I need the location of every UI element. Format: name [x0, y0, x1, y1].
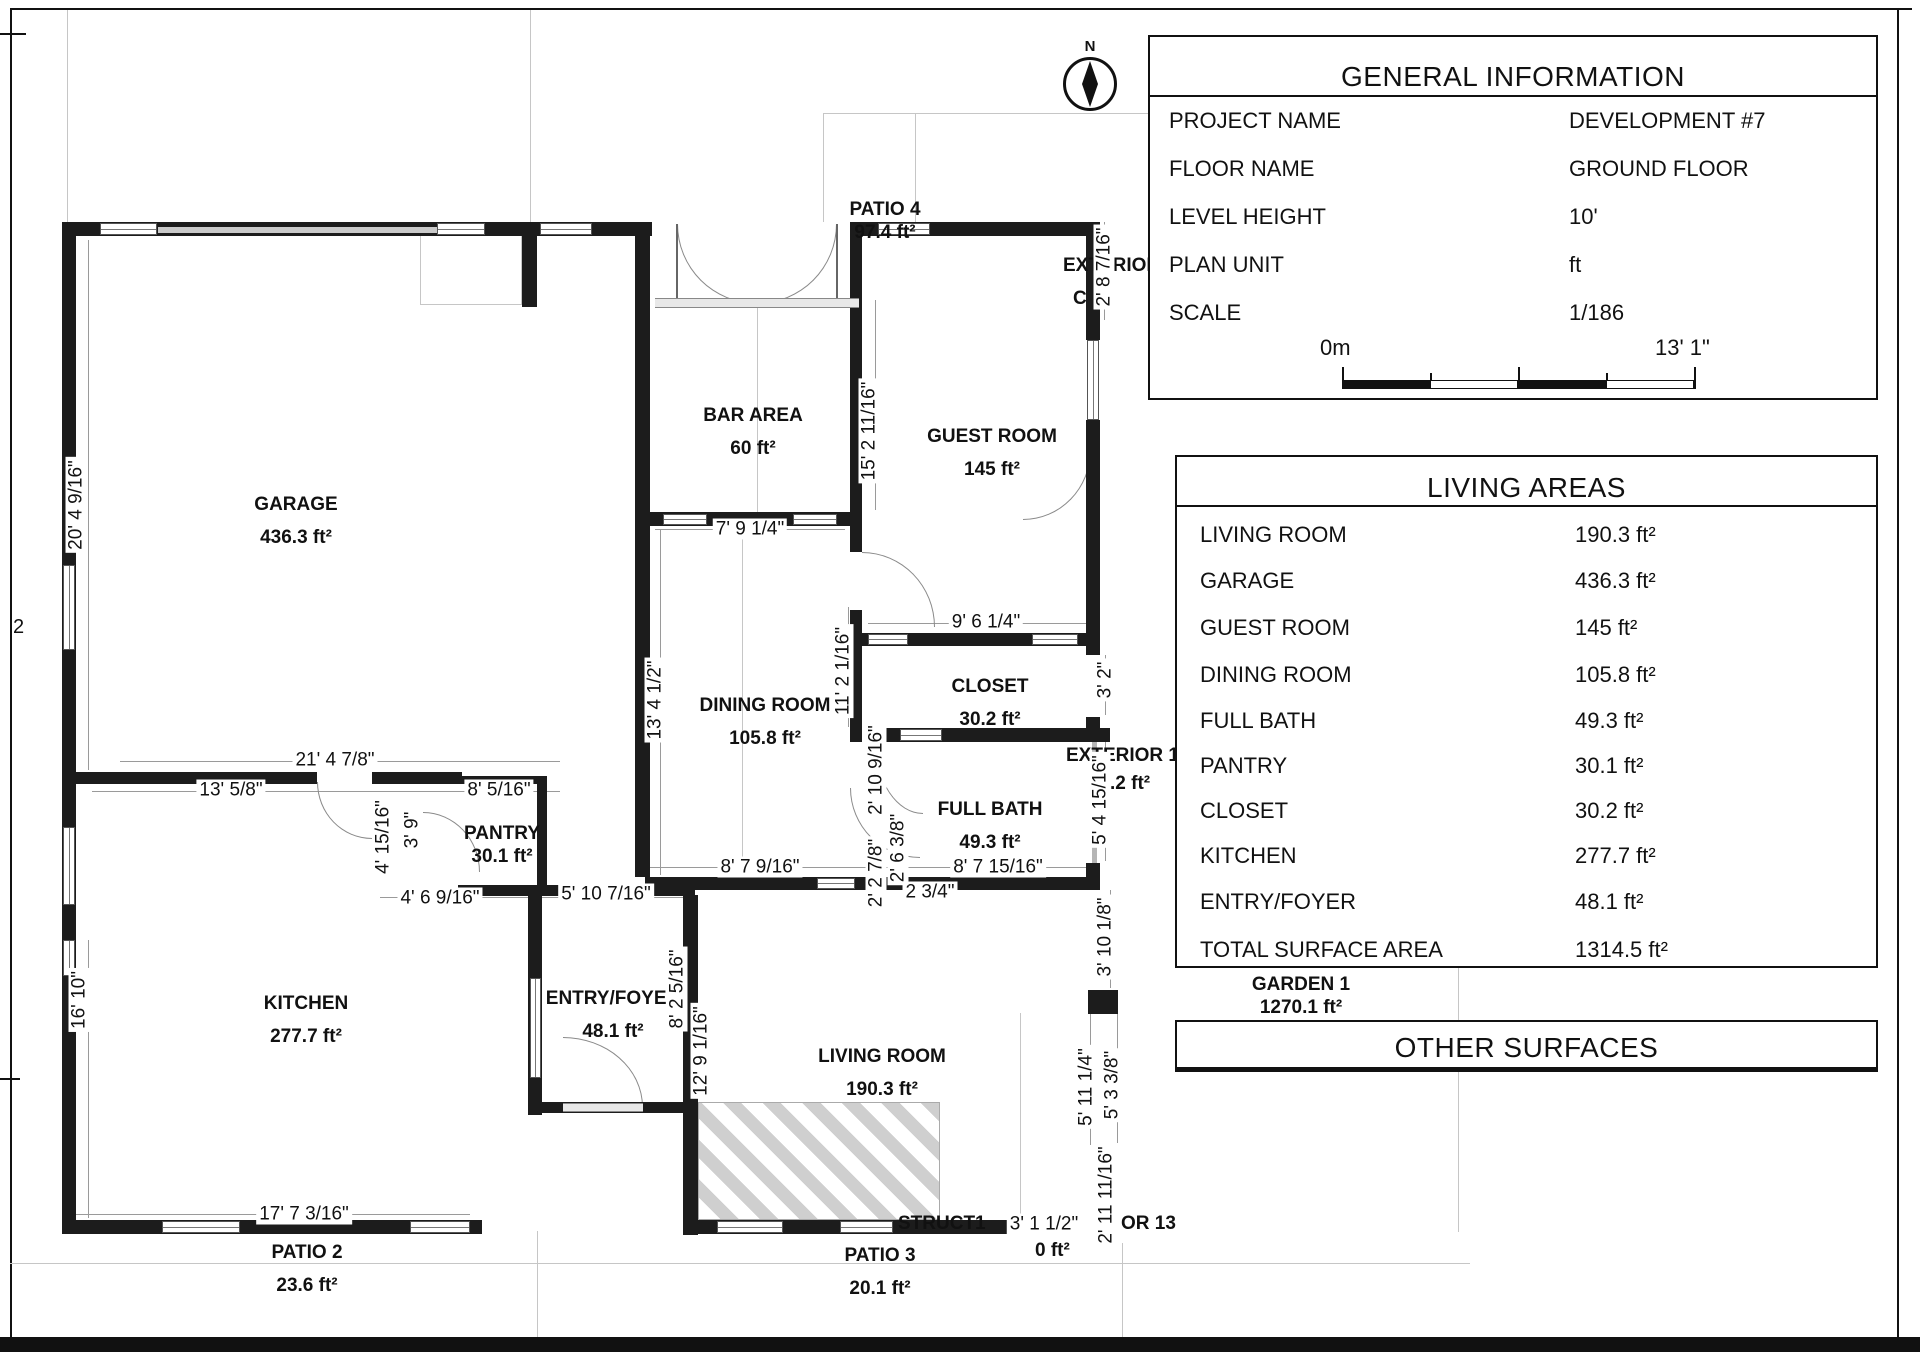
- info-label: PLAN UNIT: [1169, 252, 1284, 277]
- scale-start-label: 0m: [1320, 337, 1351, 359]
- door-arc: [563, 1037, 643, 1107]
- area-label: LIVING ROOM: [1200, 522, 1347, 547]
- info-value: 10': [1569, 205, 1598, 229]
- wall: [62, 222, 76, 1234]
- dimension-label: 2' 10 9/16": [866, 722, 887, 818]
- scale-segment: [1342, 380, 1430, 389]
- window: [1032, 634, 1078, 645]
- area-label: KITCHEN: [1200, 843, 1297, 868]
- garden-label: GARDEN 1 1270.1 ft²: [1252, 974, 1350, 1019]
- dimension-label: 3' 9": [402, 809, 423, 852]
- dimension-label: 21' 4 7/8": [292, 750, 377, 771]
- panel-separator: [1177, 505, 1876, 507]
- room-area: 145 ft²: [927, 459, 1057, 481]
- area-row: ENTRY/FOYER 48.1 ft²: [1200, 890, 1860, 914]
- window: [437, 223, 485, 235]
- info-value: GROUND FLOOR: [1569, 157, 1749, 181]
- area-row: PANTRY 30.1 ft²: [1200, 754, 1860, 778]
- room-label-pantry: PANTRY 30.1 ft²: [464, 823, 540, 868]
- area-label: FULL BATH: [1200, 708, 1316, 733]
- wall: [1088, 990, 1118, 1014]
- room-label-kitchen: KITCHEN 277.7 ft²: [264, 993, 348, 1048]
- area-row: DINING ROOM 105.8 ft²: [1200, 663, 1860, 687]
- info-value: 1/186: [1569, 301, 1624, 325]
- window: [793, 514, 837, 525]
- wall: [522, 233, 537, 307]
- room-name: PATIO 4: [849, 199, 920, 221]
- area-value: 48.1 ft²: [1575, 890, 1643, 914]
- dimension-label: 20' 4 9/16": [66, 457, 87, 553]
- area-label: GUEST ROOM: [1200, 615, 1350, 640]
- dimension-label: 8' 2 5/16": [667, 946, 688, 1031]
- page-border-bottom: [0, 1337, 1920, 1352]
- room-area: 48.1 ft²: [546, 1021, 680, 1043]
- compass-needle-icon: [1082, 61, 1098, 84]
- room-area: 105.8 ft²: [700, 728, 831, 750]
- dimension-label: 16' 10": [69, 968, 90, 1032]
- dimension-label: 8' 5/16": [464, 780, 533, 801]
- room-label-garage: GARAGE 436.3 ft²: [254, 494, 337, 549]
- info-value: DEVELOPMENT #7: [1569, 109, 1765, 133]
- door-arc: [862, 552, 935, 627]
- room-label-bar-area: BAR AREA 60 ft²: [703, 405, 803, 460]
- structure-hatch: [698, 1102, 940, 1220]
- scale-end-label: 13' 1": [1655, 337, 1710, 359]
- room-area: 30.1 ft²: [464, 846, 540, 868]
- window: [540, 223, 592, 235]
- edge-tick-top: [0, 33, 26, 35]
- door-leaf: [676, 224, 678, 304]
- area-label: ENTRY/FOYER: [1200, 889, 1356, 914]
- area-value: 190.3 ft²: [1575, 523, 1656, 547]
- room-name: FULL BATH: [938, 799, 1043, 821]
- room-label-patio2: PATIO 2 23.6 ft²: [271, 1242, 342, 1297]
- dimension-label: 2' 2 7/8": [866, 836, 887, 910]
- info-row: SCALE 1/186: [1169, 301, 1859, 325]
- dimension-label: 5' 3 3/8": [1102, 1048, 1123, 1122]
- room-name: LIVING ROOM: [818, 1046, 946, 1068]
- garden-area: 1270.1 ft²: [1252, 997, 1350, 1019]
- info-label: PROJECT NAME: [1169, 108, 1341, 133]
- site-line: [1122, 1243, 1123, 1337]
- dimension-label: 17' 7 3/16": [256, 1204, 352, 1225]
- wall: [1086, 863, 1100, 888]
- page-border-top: [10, 8, 1912, 10]
- dimension-label: 2' 8 7/16": [1094, 224, 1115, 309]
- dimension-label: 2' 11 11/16": [1096, 1143, 1117, 1246]
- info-row: LEVEL HEIGHT 10': [1169, 205, 1859, 229]
- extension-line: [1020, 1013, 1021, 1218]
- door13-label: OR 13: [1121, 1213, 1176, 1235]
- scale-tick: [1694, 367, 1696, 389]
- compass-north-label: N: [1085, 38, 1096, 55]
- room-name: GUEST ROOM: [927, 426, 1057, 448]
- scale-segment: [1518, 380, 1606, 389]
- room-name: GARAGE: [254, 494, 337, 516]
- site-line: [823, 113, 1149, 114]
- site-line: [10, 1263, 1470, 1264]
- wall: [1086, 717, 1100, 742]
- dimension-label: 15' 2 11/16": [859, 379, 880, 484]
- room-name: BAR AREA: [703, 405, 803, 427]
- edge-label: 2: [13, 616, 24, 639]
- site-line: [530, 10, 531, 222]
- garden-boundary-line: [1458, 1072, 1459, 1232]
- door-arc: [317, 782, 372, 839]
- info-row: PROJECT NAME DEVELOPMENT #7: [1169, 109, 1859, 133]
- other-surfaces-panel: OTHER SURFACES: [1175, 1020, 1878, 1072]
- room-area: 436.3 ft²: [254, 527, 337, 549]
- area-value: 105.8 ft²: [1575, 663, 1656, 687]
- window: [840, 1221, 893, 1233]
- panel-title: GENERAL INFORMATION: [1150, 61, 1876, 93]
- panel-separator: [1150, 95, 1876, 97]
- site-line: [537, 1231, 538, 1337]
- room-name: KITCHEN: [264, 993, 348, 1015]
- area-value: 30.1 ft²: [1575, 754, 1643, 778]
- scale-segment: [1430, 380, 1518, 389]
- room-name: ENTRY/FOYER: [546, 988, 680, 1010]
- site-line: [823, 113, 824, 222]
- info-value: ft: [1569, 253, 1581, 277]
- dimension-label: 4' 6 9/16": [397, 888, 482, 909]
- window: [868, 634, 908, 645]
- area-label: DINING ROOM: [1200, 662, 1352, 687]
- dimension-label: 2' 6 3/8": [888, 811, 909, 885]
- area-row: FULL BATH 49.3 ft²: [1200, 709, 1860, 733]
- window: [717, 1221, 783, 1233]
- room-label-patio4: PATIO 4 97.4 ft²: [849, 199, 920, 244]
- dimension-label: 7' 9 1/4": [713, 519, 787, 540]
- dimension-label: 2 3/4": [902, 882, 957, 903]
- window: [162, 1221, 240, 1233]
- scale-segment: [1606, 380, 1694, 389]
- room-label-guest-room: GUEST ROOM 145 ft²: [927, 426, 1057, 481]
- area-row: GARAGE 436.3 ft²: [1200, 569, 1860, 593]
- edge-tick-bottom: [0, 1078, 20, 1080]
- window: [900, 729, 942, 741]
- area-row: GUEST ROOM 145 ft²: [1200, 616, 1860, 640]
- dimension-label: 8' 7 15/16": [950, 857, 1046, 878]
- room-area: 49.3 ft²: [938, 832, 1043, 854]
- dimension-label: 11' 2 1/16": [833, 624, 854, 718]
- info-row: FLOOR NAME GROUND FLOOR: [1169, 157, 1859, 181]
- area-label: GARAGE: [1200, 568, 1294, 593]
- area-value: 49.3 ft²: [1575, 709, 1643, 733]
- wall: [72, 772, 317, 784]
- living-areas-panel: LIVING AREAS LIVING ROOM 190.3 ft² GARAG…: [1175, 455, 1878, 968]
- page-border-right: [1897, 8, 1899, 1352]
- room-label-full-bath: FULL BATH 49.3 ft²: [938, 799, 1043, 854]
- dimension-label: 3' 1 1/2": [1007, 1214, 1081, 1235]
- info-label: FLOOR NAME: [1169, 156, 1314, 181]
- door-threshold: [563, 1103, 643, 1112]
- area-label: TOTAL SURFACE AREA: [1200, 937, 1443, 962]
- room-label-patio3: PATIO 3 20.1 ft²: [844, 1245, 915, 1300]
- dimension-label: 3' 10 1/8": [1095, 894, 1116, 979]
- window: [1087, 340, 1099, 420]
- room-label-entry-foyer: ENTRY/FOYER 48.1 ft²: [546, 988, 680, 1043]
- area-value: 145 ft²: [1575, 616, 1637, 640]
- dimension-label: 12' 9 1/16": [691, 1003, 712, 1099]
- dimension-label: 3' 2": [1095, 659, 1116, 702]
- room-area: 30.2 ft²: [951, 709, 1028, 731]
- room-name: CLOSET: [951, 676, 1028, 698]
- window: [410, 1221, 470, 1233]
- dimension-label: 9' 6 1/4": [949, 612, 1023, 633]
- door-leaf: [836, 224, 838, 304]
- structure-label: STRUCT1: [898, 1213, 986, 1235]
- exterior-area-mid: .2 ft²: [1110, 773, 1150, 795]
- room-label-living-room: LIVING ROOM 190.3 ft²: [818, 1046, 946, 1101]
- ceiling-recess-outline: [420, 233, 522, 305]
- dimension-label: 5' 11 1/4": [1076, 1045, 1097, 1129]
- area-row: KITCHEN 277.7 ft²: [1200, 844, 1860, 868]
- door-arc: [757, 224, 837, 304]
- dimension-label: 4' 15/16": [373, 797, 394, 877]
- wall: [1086, 420, 1100, 655]
- garage-door-band: [158, 227, 438, 233]
- exterior-area-fragment: C: [1073, 288, 1087, 310]
- window: [663, 514, 707, 525]
- area-value: 436.3 ft²: [1575, 569, 1656, 593]
- room-area: 190.3 ft²: [818, 1079, 946, 1101]
- structure-area: 0 ft²: [1035, 1240, 1070, 1262]
- door-threshold: [655, 298, 859, 308]
- room-area: 60 ft²: [703, 438, 803, 460]
- room-area: 97.4 ft²: [849, 222, 920, 244]
- window: [817, 878, 855, 889]
- compass-needle-icon: [1082, 84, 1098, 107]
- area-value: 30.2 ft²: [1575, 799, 1643, 823]
- room-label-dining-room: DINING ROOM 105.8 ft²: [700, 695, 831, 750]
- site-line: [67, 10, 68, 222]
- area-row-total: TOTAL SURFACE AREA 1314.5 ft²: [1200, 938, 1860, 962]
- window: [63, 827, 75, 905]
- room-name: PATIO 3: [844, 1245, 915, 1267]
- room-name: PANTRY: [464, 823, 540, 845]
- room-area: 277.7 ft²: [264, 1026, 348, 1048]
- window: [100, 223, 157, 235]
- panel-title: LIVING AREAS: [1177, 472, 1876, 504]
- door-arc: [677, 224, 757, 304]
- info-label: SCALE: [1169, 300, 1241, 325]
- dimension-label: 5' 4 15/16": [1090, 752, 1111, 848]
- dimension-label: 13' 4 1/2": [645, 657, 666, 742]
- garden-boundary-line: [1458, 968, 1459, 1020]
- area-label: CLOSET: [1200, 798, 1288, 823]
- exterior-label-mid: EXTERIOR 1: [1066, 745, 1179, 767]
- info-row: PLAN UNIT ft: [1169, 253, 1859, 277]
- area-label: PANTRY: [1200, 753, 1287, 778]
- room-area: 20.1 ft²: [844, 1278, 915, 1300]
- room-name: DINING ROOM: [700, 695, 831, 717]
- wall: [635, 222, 650, 877]
- dimension-label: 5' 10 7/16": [558, 884, 654, 905]
- dimension-label: 8' 7 9/16": [717, 857, 802, 878]
- general-information-panel: GENERAL INFORMATION PROJECT NAME DEVELOP…: [1148, 35, 1878, 400]
- window: [530, 978, 541, 1078]
- info-label: LEVEL HEIGHT: [1169, 204, 1326, 229]
- window: [63, 565, 75, 650]
- area-row: CLOSET 30.2 ft²: [1200, 799, 1860, 823]
- page-border-left: [10, 8, 12, 1352]
- dimension-label: 13' 5/8": [196, 780, 265, 801]
- room-name: PATIO 2: [271, 1242, 342, 1264]
- panel-title: OTHER SURFACES: [1177, 1032, 1876, 1064]
- floor-plan-sheet: 2: [0, 0, 1920, 1358]
- dimension-line: [88, 240, 89, 770]
- garden-name: GARDEN 1: [1252, 974, 1350, 996]
- area-row: LIVING ROOM 190.3 ft²: [1200, 523, 1860, 547]
- area-value: 277.7 ft²: [1575, 844, 1656, 868]
- wall: [372, 772, 462, 784]
- room-area: 23.6 ft²: [271, 1275, 342, 1297]
- room-label-closet: CLOSET 30.2 ft²: [951, 676, 1028, 731]
- area-value: 1314.5 ft²: [1575, 938, 1668, 962]
